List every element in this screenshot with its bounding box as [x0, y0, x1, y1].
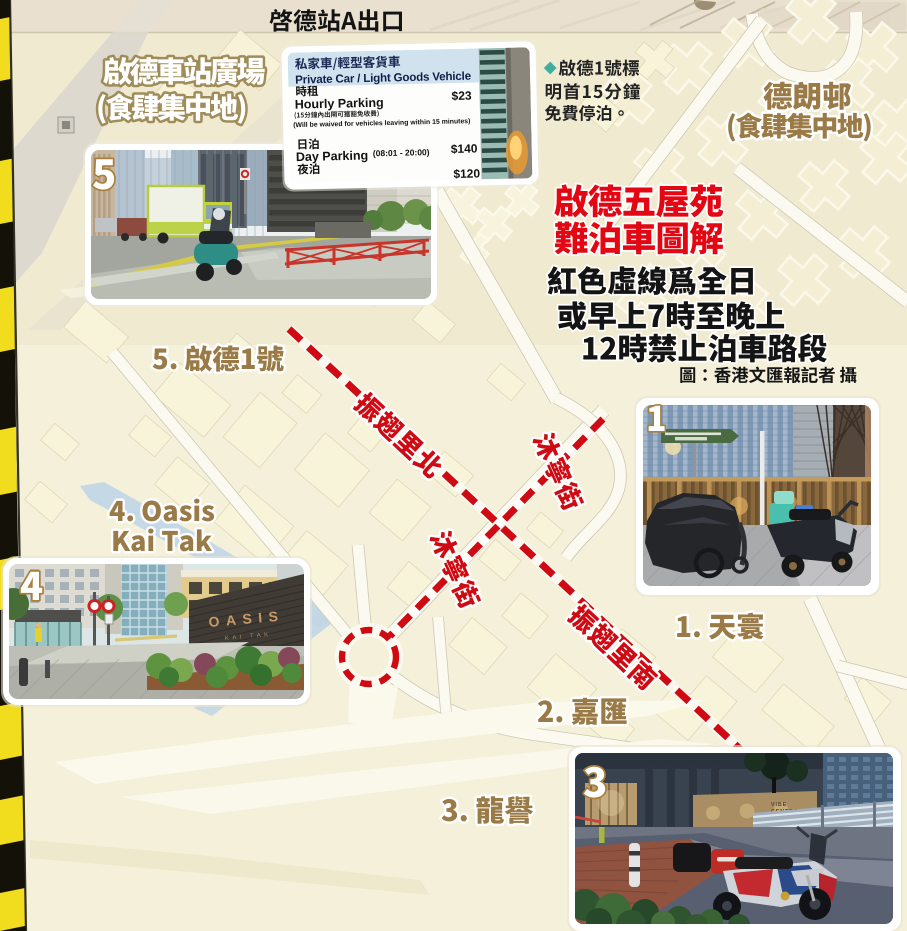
- svg-text:$140: $140: [451, 141, 478, 156]
- svg-text:Day Parking: Day Parking: [296, 148, 369, 164]
- svg-text:$23: $23: [451, 89, 472, 103]
- svg-text:VIBE: VIBE: [771, 802, 787, 808]
- svg-text:(08:01 - 20:00): (08:01 - 20:00): [373, 147, 430, 158]
- svg-text:Hourly Parking: Hourly Parking: [295, 96, 384, 112]
- svg-text:$120: $120: [453, 166, 480, 181]
